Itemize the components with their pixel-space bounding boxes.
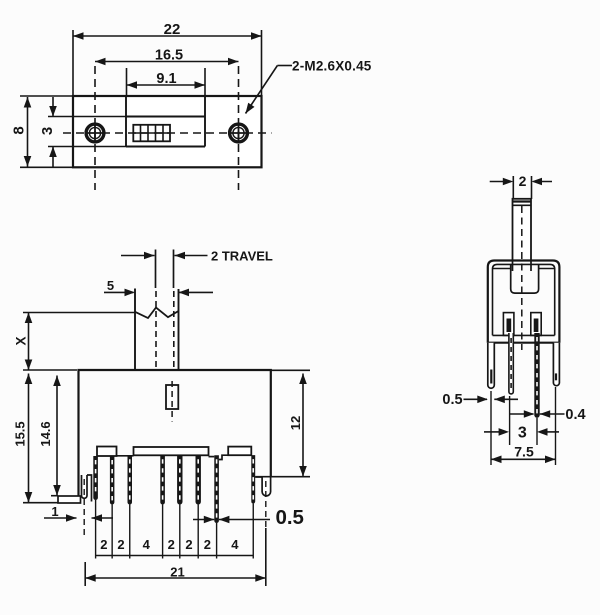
- svg-text:22: 22: [164, 21, 181, 38]
- svg-text:4: 4: [231, 537, 239, 552]
- svg-text:1: 1: [51, 504, 58, 519]
- svg-text:14.6: 14.6: [38, 421, 53, 446]
- svg-text:2: 2: [117, 537, 124, 552]
- svg-text:2: 2: [168, 537, 175, 552]
- svg-text:21: 21: [170, 565, 184, 580]
- svg-text:2: 2: [100, 537, 107, 552]
- svg-text:8: 8: [11, 126, 28, 134]
- svg-text:9.1: 9.1: [156, 71, 176, 87]
- svg-text:0.5: 0.5: [442, 392, 462, 408]
- svg-text:0.5: 0.5: [275, 506, 304, 529]
- svg-text:3: 3: [39, 127, 56, 135]
- svg-text:3: 3: [518, 425, 527, 442]
- svg-text:X: X: [14, 336, 29, 345]
- svg-text:2-M2.6X0.45: 2-M2.6X0.45: [292, 59, 372, 74]
- svg-text:2: 2: [519, 173, 527, 189]
- svg-text:7.5: 7.5: [514, 444, 534, 460]
- svg-text:5: 5: [107, 278, 114, 293]
- svg-text:12: 12: [288, 416, 303, 430]
- svg-text:0.4: 0.4: [565, 407, 585, 423]
- svg-text:2: 2: [185, 537, 192, 552]
- svg-text:15.5: 15.5: [13, 421, 28, 446]
- svg-text:2: 2: [204, 537, 211, 552]
- svg-text:4: 4: [143, 537, 151, 552]
- svg-text:16.5: 16.5: [155, 48, 183, 64]
- svg-text:2 TRAVEL: 2 TRAVEL: [211, 249, 273, 264]
